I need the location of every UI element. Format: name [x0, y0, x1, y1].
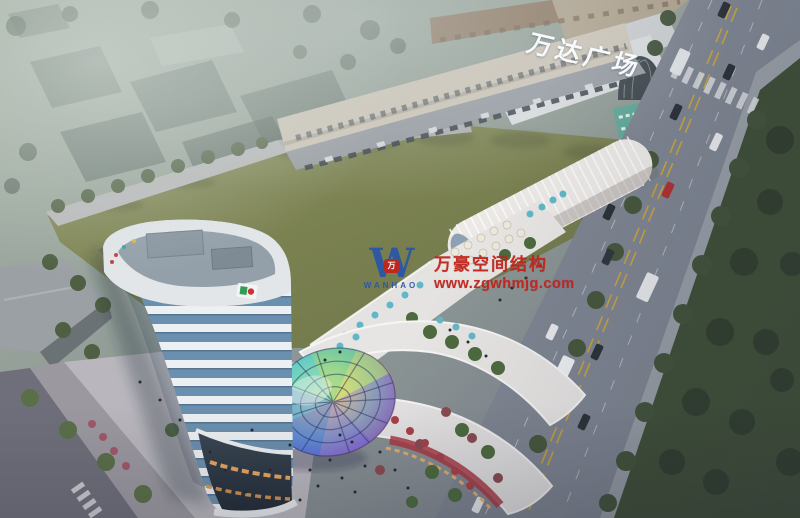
- watermark-logo-caption: WANHAO: [358, 281, 424, 290]
- tower-logo: [236, 283, 258, 300]
- aerial-render-image: 万达广场 W 万 WANHAO 万豪空间结构 www.zgwhmjg.com: [0, 0, 800, 518]
- watermark-logo: W 万 WANHAO: [358, 248, 424, 290]
- watermark-line1: 万豪空间结构: [434, 256, 575, 273]
- watermark-text: 万豪空间结构 www.zgwhmjg.com: [434, 248, 575, 292]
- watermark-line2: www.zgwhmjg.com: [434, 276, 575, 292]
- watermark: W 万 WANHAO 万豪空间结构 www.zgwhmjg.com: [358, 248, 575, 292]
- watermark-logo-badge: 万: [384, 259, 399, 273]
